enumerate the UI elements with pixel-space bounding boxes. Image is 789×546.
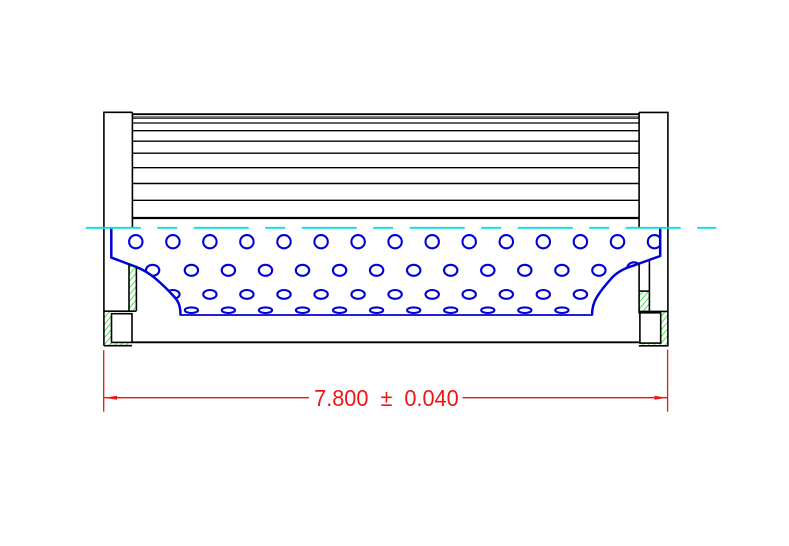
svg-text:7.800 ± 0.040: 7.800 ± 0.040: [314, 385, 459, 411]
